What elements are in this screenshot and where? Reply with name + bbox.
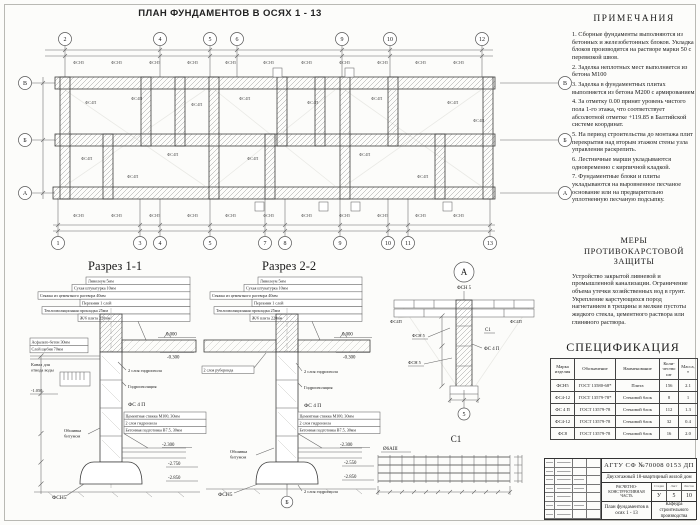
plan-axis-circles-right: В Б А	[559, 77, 572, 200]
axis-label: 6	[236, 37, 239, 43]
spec-cell: Плита	[616, 380, 660, 392]
slab-mark: ФСН5	[263, 60, 274, 65]
block-mark: ФС4П	[417, 174, 428, 179]
slab-mark: ФСН5	[415, 60, 426, 65]
spec-cell: ГОСТ 13579-78	[575, 428, 616, 440]
note-item: 6. Лестничные марши укладываются одновре…	[572, 156, 696, 171]
spec-cell: Стеновой блок	[616, 392, 660, 404]
block-mark: ФС4П	[127, 174, 138, 179]
spec-cell: 1	[679, 392, 698, 404]
axis-label: 4	[159, 37, 162, 43]
block-mark: ФС4П	[191, 102, 202, 107]
spec-cell: 16	[660, 428, 679, 440]
block-mark: ФС4П	[390, 319, 403, 324]
layer-label: Стяжка из цементного раствора 40мм	[212, 293, 278, 298]
spec-cell: ФС4-12	[551, 392, 575, 404]
plan-walls	[53, 77, 495, 199]
note-item: 1. Сборные фундаменты выполняются из бет…	[572, 31, 696, 62]
department-name: Кафедра строительного производства	[652, 502, 696, 520]
project-name: Двухэтажный 18-квартирный жилой дом	[602, 473, 696, 483]
part-name: РАСЧЕТНО-КОНСТРУКТИВНАЯ ЧАСТЬ	[602, 483, 652, 501]
elevation-label: -2.850	[344, 475, 357, 480]
slab-mark: ФСН5	[377, 213, 388, 218]
stage-grid: Стадия Лист Листов У 5 10	[652, 483, 696, 501]
material-label: Асфальто-бетон 30мм	[32, 339, 71, 344]
axis-label: 1	[57, 241, 60, 247]
spec-header-row: Марка изделия Обозначение Наименование К…	[551, 359, 698, 380]
spec-cell: Стеновой блок	[616, 428, 660, 440]
note-item: 2. Заделка неплотных мест выполняется из…	[572, 64, 696, 79]
title-block-main: АГТУ СФ №70008 0153 ДП Двухэтажный 18-кв…	[602, 459, 696, 519]
elevation-label: -0.300	[167, 356, 180, 361]
drawing-sheet: ПЛАН ФУНДАМЕНТОВ В ОСЯХ 1 - 13	[0, 0, 700, 525]
slab-mark: ФСН5	[339, 213, 350, 218]
detail-c1: С1 Ø6АIII	[366, 430, 544, 502]
rebar-label: Ø6АIII	[383, 447, 398, 452]
detail-title: А	[461, 267, 468, 277]
spec-cell: ФС4-12	[551, 416, 575, 428]
layer-label: Сухая штукатурка 10мм	[74, 286, 116, 291]
note-item: 4. За отметку 0.00 принят уровень чистог…	[572, 98, 696, 129]
detail-title: С1	[451, 434, 462, 444]
note-item: 7. Фундаментные блоки и плиты укладывают…	[572, 173, 696, 204]
section-axis-circle: Б	[281, 496, 293, 508]
slab-mark: ФСН5	[225, 60, 236, 65]
spec-title: СПЕЦИФИКАЦИЯ	[548, 340, 698, 355]
slab-mark: ФСН5	[111, 213, 122, 218]
axis-label: 13	[487, 241, 493, 247]
spec-row: ФСН5 ГОСТ 13580-68* Плита 156 2.1	[551, 380, 698, 392]
block-mark: ФС 4 П	[484, 347, 500, 352]
material-label: Обшивка	[64, 428, 81, 433]
footing-mark: ФСН5	[218, 492, 233, 498]
slab-mark: ФСН5	[453, 213, 464, 218]
spec-cell: 0.4	[679, 416, 698, 428]
slab-mark: ФСН5	[225, 213, 236, 218]
plan-axis-circles-left: В Б А	[19, 77, 32, 200]
axis-label: 8	[284, 241, 287, 247]
slab-mark: ФСН5	[301, 213, 312, 218]
axis-label: 10	[385, 241, 391, 247]
sheet-count: 10	[682, 491, 696, 501]
slab-mark: ФСН5	[111, 60, 122, 65]
axis-label: 9	[341, 37, 344, 43]
slab-mark: ФСН5	[73, 213, 84, 218]
material-label: Гидроизоляция	[128, 384, 156, 389]
spec-header: Наименование	[616, 359, 660, 380]
spec-row: ФС 4 П ГОСТ 13579-78 Стеновой блок 112 1…	[551, 404, 698, 416]
layer-label: Линолеум 5мм	[260, 278, 286, 283]
stage-header: Листов	[682, 483, 696, 491]
material-label: Гидроизоляция	[304, 385, 332, 390]
slab-mark: ФСН 5	[457, 286, 472, 291]
spec-cell: ФС 4 П	[551, 404, 575, 416]
spec-cell: ГОСТ 13579-78*	[575, 392, 616, 404]
slab-mark: ФСН5	[73, 60, 84, 65]
karst-text: Устройство закрытой ливневой и промышлен…	[572, 273, 696, 327]
axis-label: А	[563, 191, 568, 197]
block-mark: ФС 4 П	[128, 402, 145, 408]
detail-drawing	[394, 300, 534, 403]
material-label: Слой щебня 70мм	[32, 347, 64, 352]
spec-cell: Стеновой блок	[616, 416, 660, 428]
spec-row: ФС8 ГОСТ 13579-78 Стеновой блок 16 2.0	[551, 428, 698, 440]
axis-label: 5	[209, 241, 212, 247]
material-label: 2 слоя рубероида	[204, 367, 234, 372]
mesh-grid	[376, 455, 522, 495]
spec-cell: 8	[660, 392, 679, 404]
sheet-number: 5	[667, 491, 682, 501]
slab-mark: ФСН5	[301, 60, 312, 65]
elevation-label: -2.750	[168, 462, 181, 467]
elevation-label: -1.050	[31, 388, 43, 393]
layer-label: Пергамин 1 слой	[82, 301, 112, 306]
layer-label: Сухая штукатурка 10мм	[246, 286, 288, 291]
section-title: Разрез 2-2	[262, 259, 316, 273]
section-title: Разрез 1-1	[88, 259, 142, 273]
axis-label: Б	[285, 500, 289, 506]
block-mark: ФС 4 П	[304, 403, 321, 409]
slab-mark: ФСН5	[453, 60, 464, 65]
block-mark: ФС4П	[473, 118, 484, 123]
karst-panel: МЕРЫ ПРОТИВОКАРСТОВОЙ ЗАЩИТЫ Устройство …	[572, 236, 696, 328]
plan-axis-circles-bottom: 1 3 4 5 7 8 9 10 11 13	[52, 237, 497, 250]
slab-mark: ФСН5	[377, 60, 388, 65]
axis-label: 11	[405, 241, 411, 247]
plan-title: ПЛАН ФУНДАМЕНТОВ В ОСЯХ 1 - 13	[60, 8, 400, 19]
layer-label: Пергамин 1 слой	[254, 301, 284, 306]
block-mark: ФС4П	[371, 96, 382, 101]
foundation-plan: 2 4 5 6 9 10 12 1 3 4 5 7 8 9 10 11 13 В…	[15, 26, 575, 260]
spec-row: ФС4-12 ГОСТ 13579-78* Стеновой блок 8 1	[551, 392, 698, 404]
axis-label: 10	[387, 37, 393, 43]
section-2-2: Разрез 2-2 Линолеум 5мм Сухая штукатурка…	[200, 256, 382, 508]
spec-cell: 2.0	[679, 428, 698, 440]
notes-panel: ПРИМЕЧАНИЯ 1. Сборные фундаменты выполня…	[572, 14, 696, 206]
canal-label: Канал для	[31, 362, 50, 367]
material-label: 2 слоя гидроизола	[128, 368, 162, 373]
block-mark: ФС4П	[510, 319, 523, 324]
axis-label: В	[563, 81, 567, 87]
section-1-1: Разрез 1-1 Линолеум 5мм Сухая штукатурка…	[28, 256, 210, 508]
title-block-signatures	[545, 459, 602, 519]
block-mark: ФС4П	[131, 96, 142, 101]
slab-mark: ФСН5	[187, 213, 198, 218]
layer-label: Теплоизоляционная прокладка 25мм	[216, 308, 280, 313]
spec-cell: 1.3	[679, 404, 698, 416]
canal-label: отвода воды	[31, 368, 54, 373]
axis-label: 2	[64, 37, 67, 43]
spec-header: Обозначение	[575, 359, 616, 380]
layer-label: 2 слоя гидроизола	[126, 421, 158, 426]
axis-label: А	[23, 191, 28, 197]
detail-a: А ФСН 5 ФС4П ФС4П С1 ФСН 5 ФС 4 П ФСН 5	[388, 258, 546, 428]
detail-axis-circle: 5	[458, 390, 470, 420]
block-mark: ФС4П	[247, 156, 258, 161]
layer-label: 2 слоя гидроизола	[300, 421, 332, 426]
detail-title-circle: А	[454, 262, 474, 282]
slab-mark: ФСН5	[415, 213, 426, 218]
material-label: Обшивка	[230, 449, 247, 454]
axis-label: 9	[339, 241, 342, 247]
block-mark: ФС4П	[81, 156, 92, 161]
spec-row: ФС4-12 ГОСТ 13579-78 Стеновой блок 32 0.…	[551, 416, 698, 428]
doc-number: АГТУ СФ №70008 0153 ДП	[602, 459, 696, 473]
slab-mark: ФСН5	[149, 60, 160, 65]
slab-mark: ФСН 5	[408, 360, 422, 365]
axis-label: Б	[563, 138, 567, 144]
slab-mark: ФСН5	[149, 213, 160, 218]
axis-label: В	[23, 81, 27, 87]
spec-cell: 32	[660, 416, 679, 428]
note-item: 5. На период строительства до монтажа пл…	[572, 131, 696, 154]
drawing-name: План фундаментов в осях 1 - 13	[602, 502, 652, 520]
spec-cell: 112	[660, 404, 679, 416]
layer-label: Линолеум 5мм	[88, 278, 114, 283]
elevation-label: -0.300	[343, 356, 356, 361]
spec-cell: Стеновой блок	[616, 404, 660, 416]
material-label: 2 слоя гидроизола	[304, 489, 338, 494]
material-label: 2 слоя гидроизола	[304, 369, 338, 374]
stage-header: Стадия	[652, 483, 667, 491]
material-label: битумом	[64, 434, 80, 439]
spec-cell: ГОСТ 13580-68*	[575, 380, 616, 392]
stage-header: Лист	[667, 483, 682, 491]
karst-title: МЕРЫ ПРОТИВОКАРСТОВОЙ ЗАЩИТЫ	[572, 236, 696, 268]
spec-cell: ГОСТ 13579-78	[575, 416, 616, 428]
block-mark: ФС4П	[447, 100, 458, 105]
block-mark: ФС4П	[85, 100, 96, 105]
slab-mark: ФСН5	[339, 60, 350, 65]
spec-header: Марка изделия	[551, 359, 575, 380]
slab-mark: ФСН 5	[412, 333, 426, 338]
spec-header: Масса, т	[679, 359, 698, 380]
block-mark: ФС4П	[239, 96, 250, 101]
note-item: 3. Заделка в фундаментных плитах выполня…	[572, 81, 696, 96]
spec-cell: ГОСТ 13579-78	[575, 404, 616, 416]
spec-cell: 2.1	[679, 380, 698, 392]
block-mark: ФС4П	[307, 100, 318, 105]
axis-label: 12	[479, 37, 485, 43]
footing-mark: ФСН5	[52, 495, 67, 501]
block-mark: ФС4П	[359, 152, 370, 157]
mesh-mark: С1	[485, 328, 491, 333]
axis-label: 5	[209, 37, 212, 43]
specification-table: Марка изделия Обозначение Наименование К…	[550, 358, 698, 440]
plan-axis-circles-top: 2 4 5 6 9 10 12	[59, 33, 489, 46]
stage-value: У	[652, 491, 667, 501]
slab-mark: ФСН5	[263, 213, 274, 218]
slab-mark: ФСН5	[187, 60, 198, 65]
elevation-label: -2.850	[168, 476, 181, 481]
spec-cell: ФС8	[551, 428, 575, 440]
title-block: АГТУ СФ №70008 0153 ДП Двухэтажный 18-кв…	[544, 458, 697, 520]
spec-header: Коли-чество шт	[660, 359, 679, 380]
axis-label: Б	[23, 138, 27, 144]
notes-title: ПРИМЕЧАНИЯ	[572, 14, 696, 24]
material-label: битумом	[230, 455, 246, 460]
block-mark: ФС4П	[167, 152, 178, 157]
elevation-label: -2.550	[344, 461, 357, 466]
axis-label: 4	[159, 241, 162, 247]
spec-cell: 156	[660, 380, 679, 392]
layer-label: Стяжка из цементного раствора 40мм	[40, 293, 106, 298]
axis-label: 7	[264, 241, 267, 247]
axis-label: 5	[463, 412, 466, 418]
layer-label: Теплоизоляционная прокладка 25мм	[44, 308, 108, 313]
axis-label: 3	[139, 241, 142, 247]
spec-cell: ФСН5	[551, 380, 575, 392]
